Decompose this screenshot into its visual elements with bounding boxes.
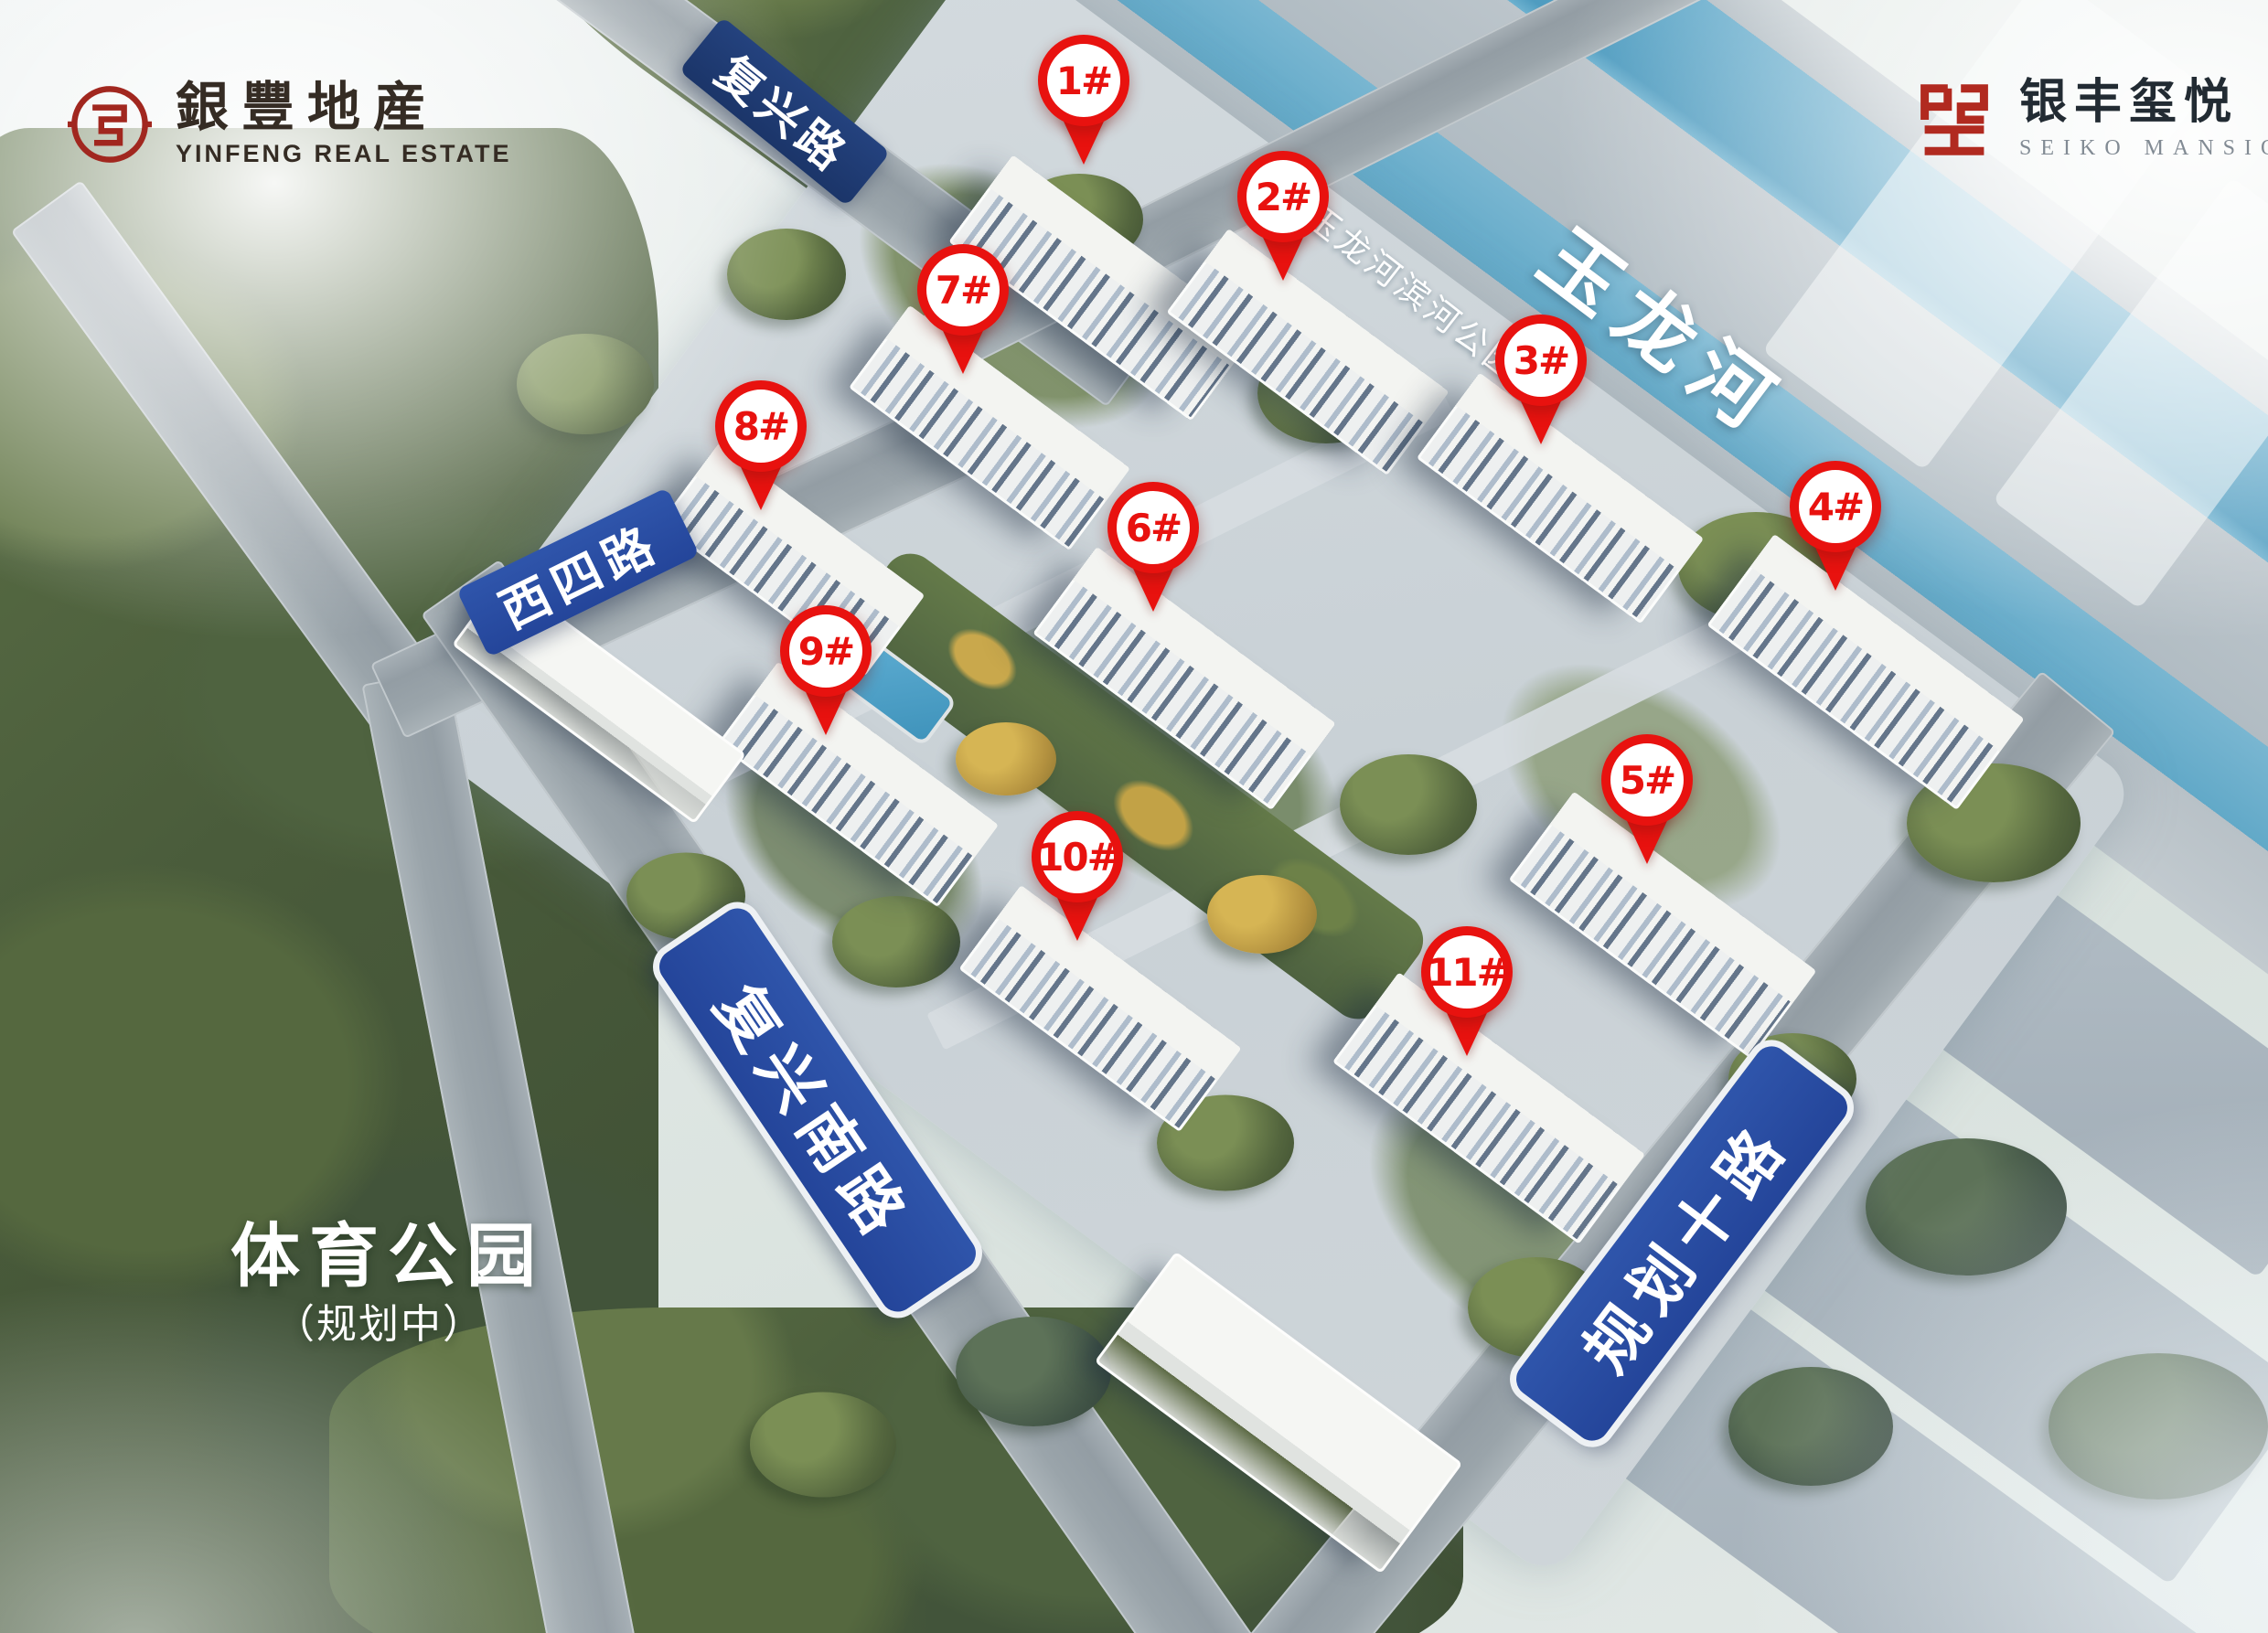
far-city-trees [1866,1138,2067,1275]
project-logo-text: 银丰玺悦 SEIKO MANSION [2019,79,2268,161]
project-name-cn: 银丰玺悦 [2019,79,2268,129]
building-marker-7[interactable]: 7# [917,244,1009,336]
developer-name-cn: 銀豐地産 [176,80,512,136]
project-logo: 银丰玺悦 SEIKO MANSION [1913,79,2268,161]
tree-grove [832,896,960,987]
tree-grove [1340,754,1477,855]
sports-park-title: 体育公园 [230,1218,545,1296]
building-marker-9[interactable]: 9# [780,605,872,697]
autumn-grove [1207,875,1317,954]
building-marker-1[interactable]: 1# [1038,35,1129,126]
autumn-grove [956,722,1056,795]
building-marker-3[interactable]: 3# [1495,315,1587,406]
marker-circle: 8# [715,380,807,472]
building-marker-11[interactable]: 11# [1421,926,1513,1018]
aerial-masterplan-rendering: 复兴路 西四路 复兴南路 规划十路 玉龙河 玉龙河滨河公园 体育公园 （规划中）… [0,0,2268,1633]
marker-label: 8# [733,404,788,449]
marker-circle: 11# [1421,926,1513,1018]
marker-circle: 6# [1107,482,1199,573]
sports-park-label: 体育公园 [230,1200,545,1300]
developer-logo-text: 銀豐地産 YINFENG REAL ESTATE [176,80,512,168]
marker-circle: 10# [1032,811,1123,902]
yinfeng-seal-icon [68,82,152,166]
marker-label: 1# [1056,59,1111,103]
tree-grove [956,1317,1111,1426]
building-marker-8[interactable]: 8# [715,380,807,472]
marker-circle: 9# [780,605,872,697]
marker-label: 9# [798,629,853,674]
marker-label: 5# [1620,758,1674,803]
marker-circle: 3# [1495,315,1587,406]
marker-label: 6# [1126,506,1181,550]
far-city-trees [2049,1353,2268,1500]
marker-label: 4# [1808,485,1863,529]
building-marker-6[interactable]: 6# [1107,482,1199,573]
marker-circle: 4# [1790,461,1881,552]
developer-name-en: YINFENG REAL ESTATE [176,140,512,168]
marker-circle: 2# [1237,151,1329,242]
marker-circle: 7# [917,244,1009,336]
building-marker-5[interactable]: 5# [1601,734,1693,826]
marker-label: 2# [1256,175,1311,219]
seiko-mansion-mark-icon [1913,79,1995,161]
marker-circle: 5# [1601,734,1693,826]
sports-park-note-text: （规划中） [274,1302,485,1347]
tree-grove [750,1393,896,1498]
tree-grove [727,229,846,320]
building-marker-2[interactable]: 2# [1237,151,1329,242]
marker-label: 11# [1427,950,1507,995]
marker-label: 3# [1514,338,1568,383]
sports-park-note: （规划中） [274,1291,485,1350]
marker-circle: 1# [1038,35,1129,126]
project-name-en: SEIKO MANSION [2019,136,2268,161]
building-marker-4[interactable]: 4# [1790,461,1881,552]
marker-label: 10# [1037,835,1118,880]
developer-logo: 銀豐地産 YINFENG REAL ESTATE [68,80,512,168]
far-city-trees [1728,1367,1893,1486]
tree-grove [517,334,654,434]
marker-label: 7# [936,268,990,313]
building-marker-10[interactable]: 10# [1032,811,1123,902]
